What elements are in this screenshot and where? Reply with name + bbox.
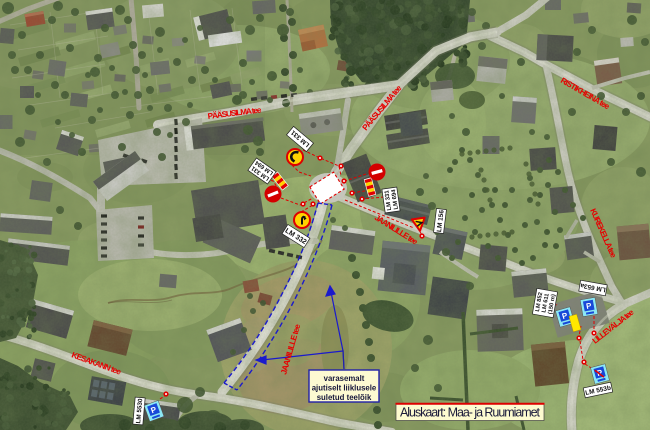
svg-text:suletud teelõik: suletud teelõik (317, 393, 372, 402)
svg-text:Aluskaart: Maa- ja Ruumiamet: Aluskaart: Maa- ja Ruumiamet (400, 406, 541, 420)
svg-text:ajutiselt liiklusele: ajutiselt liiklusele (312, 384, 377, 393)
svg-text:varasemalt: varasemalt (324, 374, 365, 383)
